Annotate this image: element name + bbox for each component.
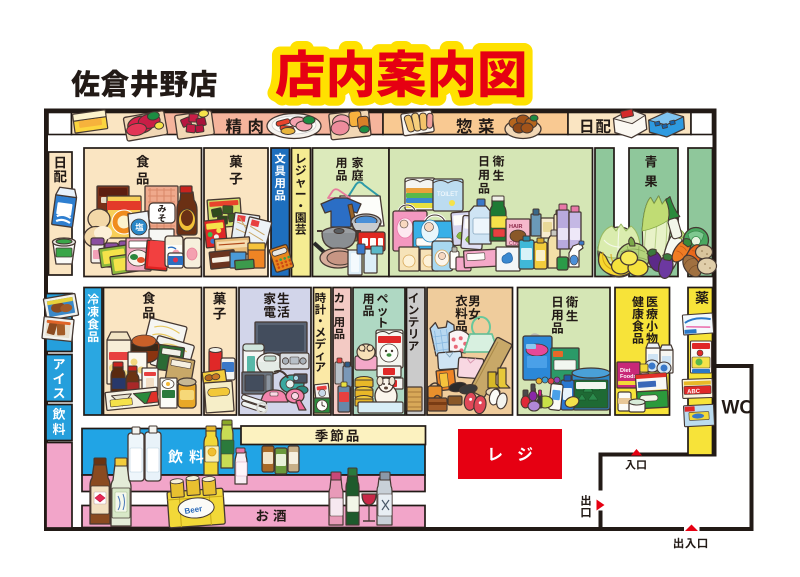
svg-text:ABC: ABC xyxy=(687,389,701,395)
svg-text:HAIR: HAIR xyxy=(509,224,522,230)
svg-text:TOILET: TOILET xyxy=(437,192,458,198)
svg-text:Foods: Foods xyxy=(620,374,637,380)
svg-text:WC: WC xyxy=(722,398,754,419)
